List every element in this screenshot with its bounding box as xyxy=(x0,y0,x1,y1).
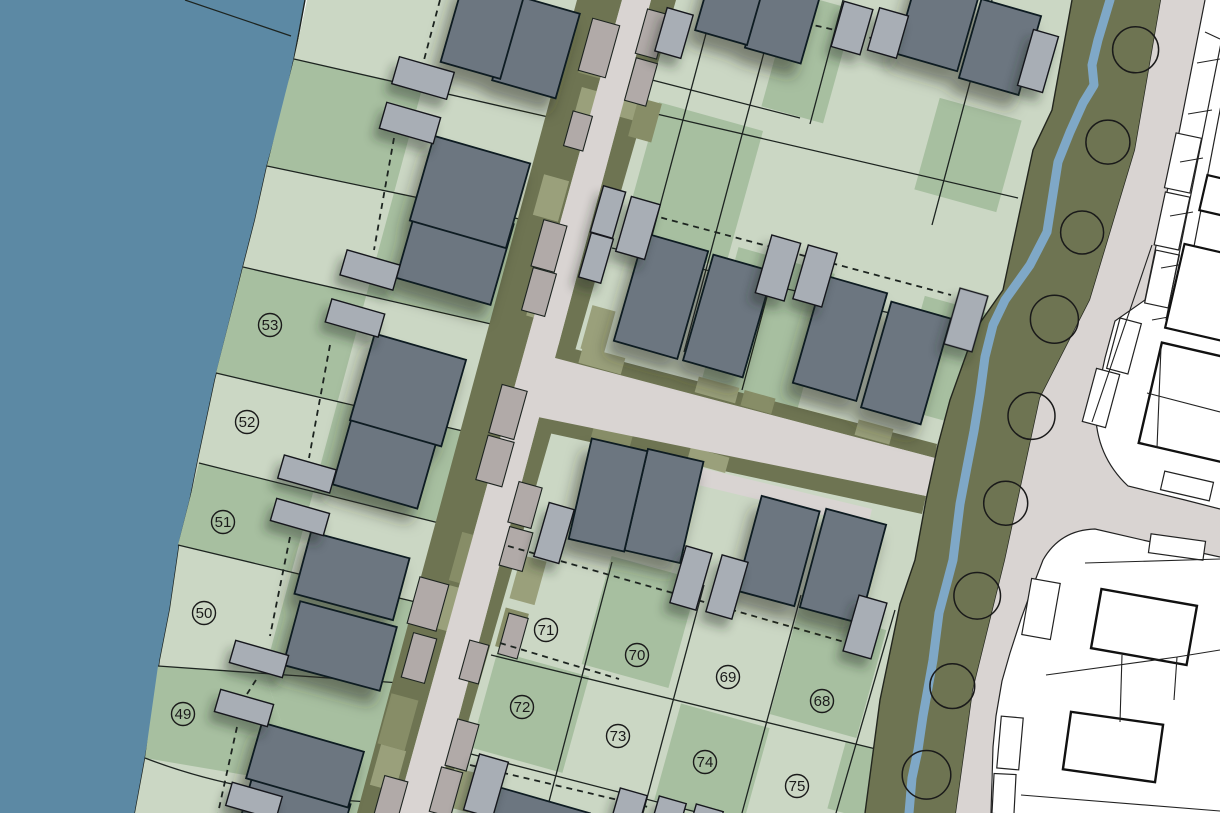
svg-text:68: 68 xyxy=(814,693,831,710)
svg-text:75: 75 xyxy=(789,778,806,795)
svg-text:52: 52 xyxy=(239,414,256,431)
svg-text:51: 51 xyxy=(215,514,232,531)
svg-text:73: 73 xyxy=(610,728,627,745)
svg-text:70: 70 xyxy=(629,647,646,664)
svg-text:50: 50 xyxy=(196,605,213,622)
svg-text:74: 74 xyxy=(697,754,714,771)
svg-text:71: 71 xyxy=(538,622,555,639)
svg-text:72: 72 xyxy=(514,699,531,716)
svg-text:49: 49 xyxy=(175,706,192,723)
svg-text:69: 69 xyxy=(720,669,737,686)
svg-text:53: 53 xyxy=(262,317,279,334)
